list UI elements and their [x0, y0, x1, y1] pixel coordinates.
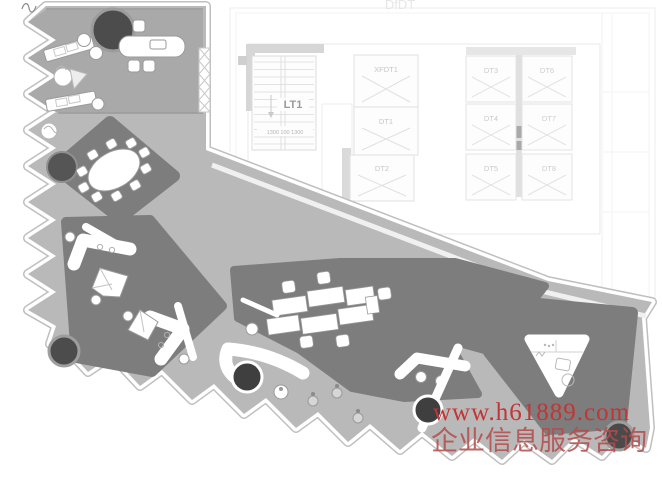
office-room-topleft	[22, 4, 210, 113]
chair	[281, 280, 296, 294]
elevator-bank-left	[350, 55, 418, 201]
stool	[91, 295, 101, 305]
floor-plan-page: LT1 1300 100 1300 XFDT1 DT1 DT2 DT3 DT6	[0, 0, 662, 483]
elevator-label-dt6: DT6	[540, 66, 554, 75]
stair-dimension-text: 1300 100 1300	[267, 130, 304, 136]
stair-lt1: LT1 1300 100 1300	[252, 56, 316, 150]
chair	[128, 60, 140, 72]
watermark-caption: 企业信息服务咨询	[431, 426, 647, 456]
chair	[316, 271, 331, 285]
chair	[335, 334, 350, 348]
elevator-label-dt5: DT5	[484, 164, 498, 173]
wall-break-symbol	[22, 4, 36, 12]
core-wall	[466, 47, 576, 55]
elevator-label-xfdt1: XFDT1	[374, 65, 398, 74]
hatched-column	[199, 48, 210, 112]
chair	[299, 335, 314, 349]
chair	[143, 60, 155, 72]
person-figure	[274, 385, 288, 399]
elevator-label-dt4: DT4	[484, 114, 498, 123]
core-column	[238, 56, 247, 65]
chair	[92, 98, 104, 110]
elevator-label-dt3: DT3	[484, 66, 498, 75]
planter-circle	[49, 336, 79, 366]
planter-circle	[47, 152, 77, 182]
chair	[416, 372, 427, 383]
watermark-url: www.h61889.com	[433, 399, 630, 426]
stool	[246, 323, 258, 335]
core-wall	[246, 44, 324, 53]
chair	[133, 20, 145, 32]
elevator-label-dt1: DT1	[379, 117, 393, 126]
planter-circle	[232, 362, 262, 392]
stool	[123, 311, 133, 321]
desk	[365, 296, 379, 315]
stool	[65, 232, 75, 242]
elevator-label-dt2: DT2	[375, 164, 389, 173]
chair	[377, 287, 392, 301]
chair	[78, 34, 91, 47]
floor-plan-svg: LT1 1300 100 1300 XFDT1 DT1 DT2 DT3 DT6	[0, 0, 662, 483]
elevator-label-dt7: DT7	[542, 114, 556, 123]
watermark: www.h61889.com 企业信息服务咨询	[431, 399, 647, 456]
stair-label: LT1	[284, 99, 303, 111]
stool	[179, 354, 189, 364]
elevator-label-dt8: DT8	[542, 164, 556, 173]
faint-cropped-header-text: DfDT	[385, 0, 415, 12]
chair	[90, 47, 103, 60]
